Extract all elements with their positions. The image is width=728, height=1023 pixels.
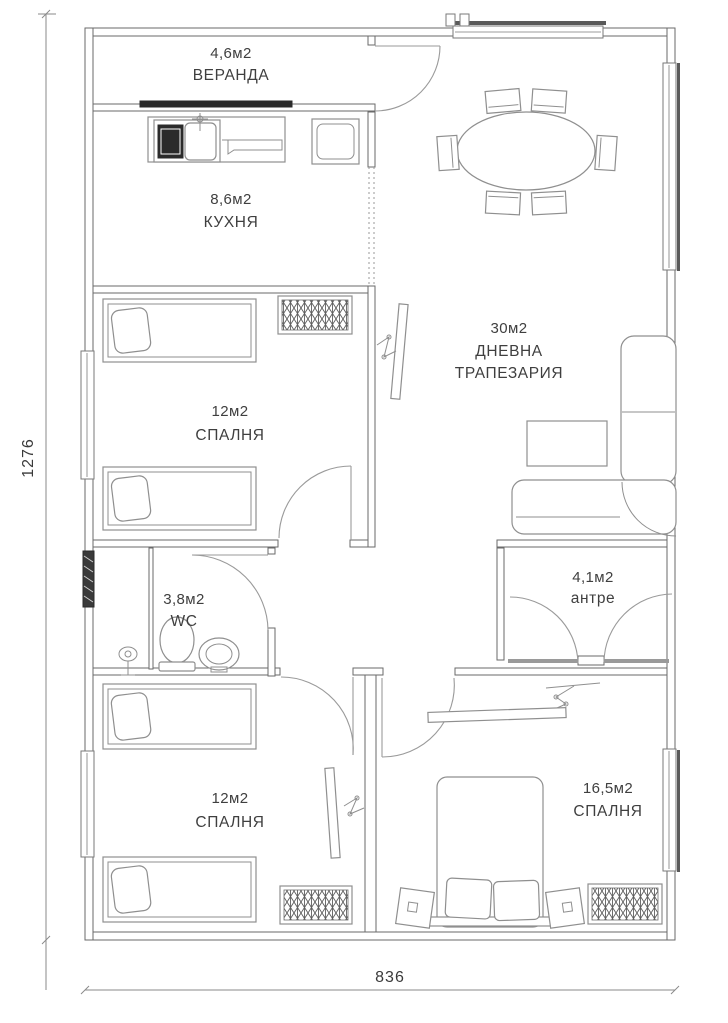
dimension-width-label: 836	[375, 969, 405, 986]
chair	[485, 89, 521, 114]
kitchen-name-label: КУХНЯ	[204, 214, 259, 231]
antre-left-threshold	[508, 659, 578, 663]
chair	[437, 135, 459, 170]
stove-icon	[158, 125, 183, 158]
bedroom-bl-name-label: СПАЛНЯ	[195, 814, 264, 831]
floor-plan-canvas: 4,6м2 ВЕРАНДА 8,6м2 КУХНЯ 30м2 ДНЕВНА ТР…	[0, 0, 728, 1023]
chair	[531, 89, 566, 113]
window-sill	[677, 750, 680, 872]
floor-plan-page: 4,6м2 ВЕРАНДА 8,6м2 КУХНЯ 30м2 ДНЕВНА ТР…	[0, 0, 728, 1023]
window-sill	[450, 21, 606, 25]
single-bed	[103, 684, 256, 749]
wardrobe	[280, 886, 352, 924]
tv-bedroom-bl-icon	[325, 768, 364, 858]
window-bedroom-mid	[81, 351, 94, 479]
dimension-bottom: 836	[81, 969, 679, 994]
wardrobe	[278, 296, 352, 334]
dining-set	[437, 89, 617, 215]
nightstand	[396, 888, 435, 928]
bedroom-mid-area-label: 12м2	[212, 403, 249, 420]
chair	[595, 135, 617, 170]
sink-icon	[199, 638, 239, 672]
window-bedroom-bl	[81, 751, 94, 857]
top-wall-tick	[446, 14, 455, 26]
pillow	[110, 865, 151, 914]
tv-bedroom-br-icon	[428, 683, 600, 722]
wc-name-label: WC	[170, 613, 197, 630]
dimension-left: 1276	[20, 10, 56, 990]
wc-area-label: 3,8м2	[163, 591, 205, 608]
pillow	[445, 878, 492, 919]
antre-door-post	[578, 656, 604, 665]
kitchen-area-label: 8,6м2	[210, 191, 252, 208]
dimension-height-label: 1276	[20, 438, 37, 478]
pillow	[110, 692, 151, 741]
tv-living-icon	[377, 304, 408, 399]
pillow	[111, 475, 152, 522]
single-bed	[103, 467, 256, 530]
dining-table	[457, 112, 595, 190]
living-name-label-2: ТРАПЕЗАРИЯ	[455, 365, 563, 382]
window-bedroom-br	[663, 749, 676, 871]
chair	[531, 191, 566, 215]
chair	[485, 191, 520, 215]
pillow	[493, 880, 539, 921]
door-bedroom-mid	[279, 466, 351, 540]
living-name-label-1: ДНЕВНА	[475, 343, 543, 360]
single-bed	[103, 857, 256, 922]
counter-wall-dark-band	[140, 101, 292, 107]
bedroom-bl-area-label: 12м2	[212, 790, 249, 807]
coffee-table	[527, 421, 607, 466]
single-bed	[103, 299, 256, 362]
antre-area-label: 4,1м2	[572, 569, 614, 586]
living-area-label: 30м2	[491, 320, 528, 337]
double-bed	[428, 777, 554, 927]
window-sill	[677, 63, 680, 271]
antre-name-label: антре	[571, 590, 616, 607]
pillow	[111, 307, 152, 354]
kitchen-furniture	[148, 113, 359, 164]
bedroom-br-area-label: 16,5м2	[583, 780, 633, 797]
door-bedroom-bl	[281, 677, 353, 755]
wardrobe	[588, 884, 662, 924]
bedroom-mid-name-label: СПАЛНЯ	[195, 427, 264, 444]
door-veranda-living	[375, 46, 440, 111]
top-wall-tick	[460, 14, 469, 26]
window-living-right	[663, 63, 676, 270]
veranda-area-label: 4,6м2	[210, 45, 252, 62]
nightstand	[546, 888, 585, 928]
veranda-name-label: ВЕРАНДА	[193, 67, 270, 84]
antre-right-threshold	[604, 659, 669, 663]
bedroom-br-name-label: СПАЛНЯ	[573, 803, 642, 820]
door-antre-left	[510, 597, 578, 663]
